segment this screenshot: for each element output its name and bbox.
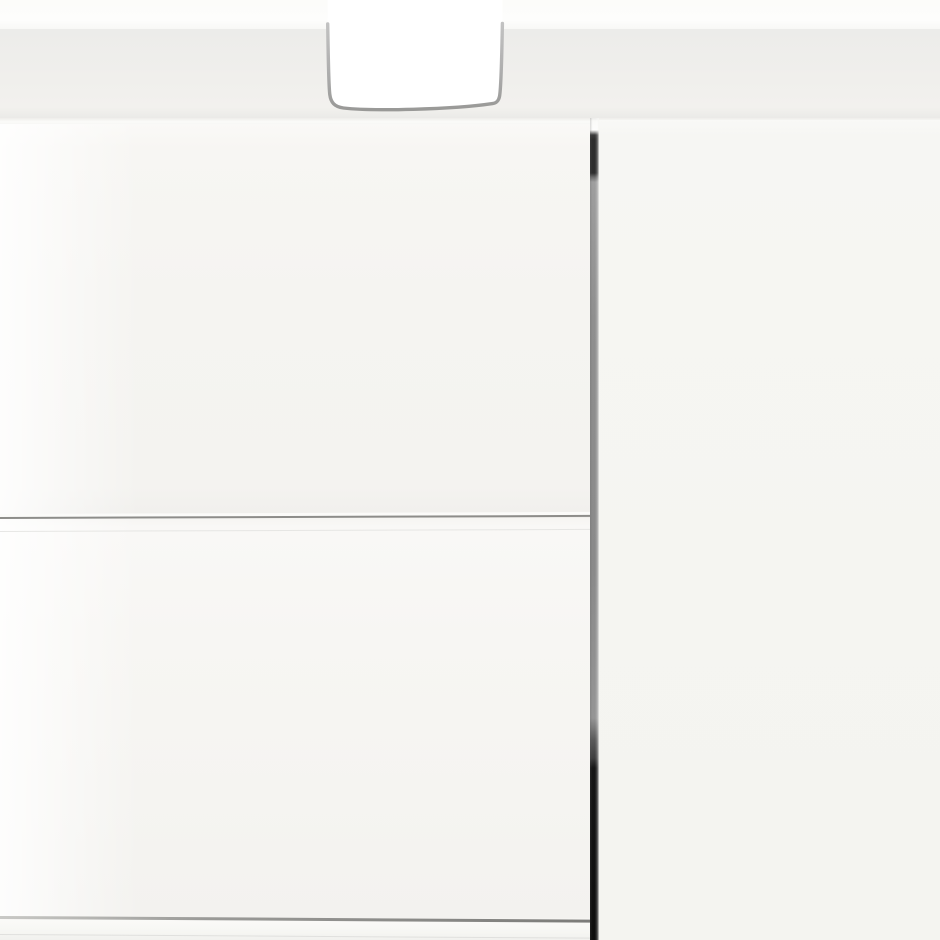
right-door-panel bbox=[597, 120, 940, 940]
lower-drawer-front bbox=[0, 518, 597, 918]
photo-canvas bbox=[0, 0, 940, 940]
panel-gap-shadow bbox=[590, 118, 599, 940]
upper-drawer-front bbox=[0, 124, 597, 518]
handle-cutout-interior bbox=[328, 0, 503, 110]
handle-cutout bbox=[300, 0, 530, 130]
